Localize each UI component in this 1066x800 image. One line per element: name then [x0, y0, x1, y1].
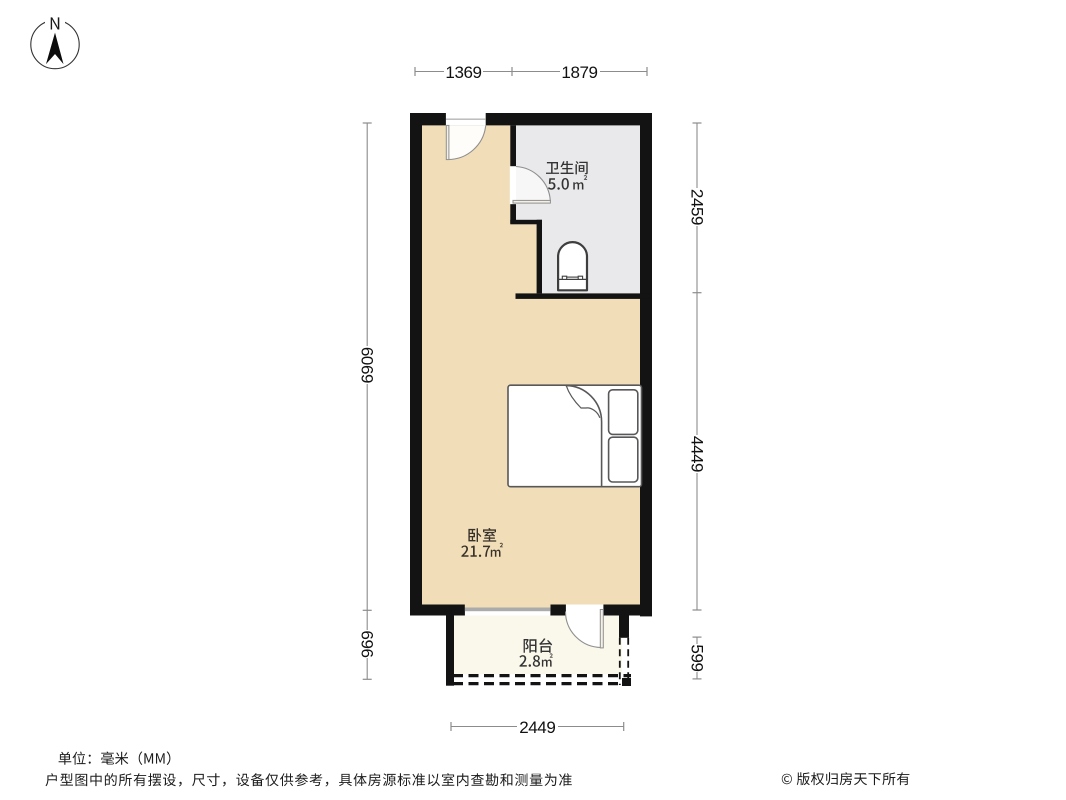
- svg-text:2449: 2449: [519, 718, 555, 737]
- svg-text:6069: 6069: [358, 347, 377, 383]
- svg-text:1369: 1369: [445, 63, 481, 82]
- svg-text:1879: 1879: [561, 63, 597, 82]
- svg-text:4449: 4449: [688, 436, 707, 472]
- svg-text:599: 599: [688, 644, 707, 671]
- svg-text:2459: 2459: [688, 189, 707, 225]
- svg-text:696: 696: [358, 630, 377, 657]
